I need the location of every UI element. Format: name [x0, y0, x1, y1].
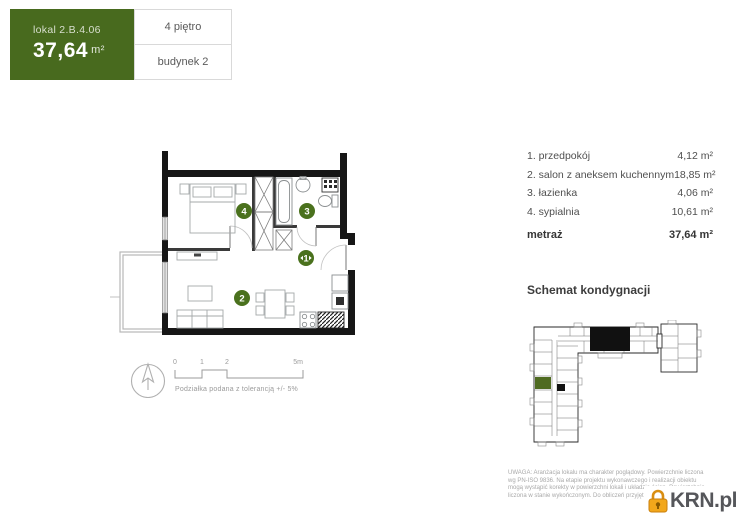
unit-area-unit: m²	[91, 44, 105, 56]
unit-area: 37,64m²	[33, 39, 134, 63]
scale-tick-1: 1	[200, 359, 204, 366]
svg-text:3: 3	[304, 207, 309, 218]
scale-tolerance-note: Podziałka podana z tolerancją +/- 5%	[175, 386, 298, 393]
schematic-black-block	[590, 327, 630, 351]
svg-text:4: 4	[241, 207, 247, 218]
unit-id-label: lokal 2.B.4.06	[33, 24, 134, 36]
unit-area-value: 37,64	[33, 39, 88, 62]
disclaimer-line: UWAGA: Aranżacja lokalu ma charakter pog…	[508, 470, 723, 478]
floor-cell: 4 piętro	[135, 10, 231, 45]
scale-ruler	[175, 370, 303, 378]
room-row: 3. łazienka 4,06 m²	[527, 187, 713, 199]
room-name: 4. sypialnia	[527, 206, 580, 218]
svg-text:2: 2	[239, 294, 244, 305]
toilet-icon	[319, 195, 339, 207]
door-entrance	[321, 245, 346, 270]
header-unit-card: lokal 2.B.4.06 37,64m²	[10, 9, 134, 80]
schematic-core-block	[557, 384, 565, 391]
total-area: 37,64 m²	[669, 229, 713, 241]
door-bedroom	[230, 226, 252, 248]
room-marker-bedroom: 4	[236, 203, 252, 219]
page-root: lokal 2.B.4.06 37,64m² 4 piętro budynek …	[0, 0, 740, 522]
scale-tick-5m: 5m	[293, 359, 303, 366]
scale-tick-2: 2	[225, 359, 229, 366]
window-bedroom	[163, 217, 167, 240]
room-name: 2. salon z aneksem kuchennym	[527, 169, 674, 181]
svg-text:1: 1	[303, 254, 309, 265]
room-area: 18,85 m²	[674, 169, 715, 181]
room-row: 1. przedpokój 4,12 m²	[527, 150, 713, 162]
total-label: metraż	[527, 229, 562, 241]
balcony	[120, 252, 167, 332]
room-marker-bathroom: 3	[299, 203, 315, 219]
disclaimer-line: wg PN-ISO 9836. Na etapie projektu wykon…	[508, 478, 723, 486]
total-area-row: metraż 37,64 m²	[527, 229, 713, 241]
counter-hatch-icon	[318, 312, 344, 328]
scale-tick-0: 0	[173, 359, 177, 366]
room-name: 1. przedpokój	[527, 150, 590, 162]
logo-text: KRN.pl	[670, 489, 737, 513]
room-name: 3. łazienka	[527, 187, 577, 199]
washing-machine-icon	[322, 178, 338, 192]
kitchen-icons	[300, 275, 348, 328]
compass-icon	[132, 364, 165, 398]
fridge-icon	[332, 275, 348, 291]
krn-logo[interactable]: KRN.pl	[644, 486, 739, 515]
room-area: 10,61 m²	[672, 206, 713, 218]
coffee-table-icon	[188, 286, 212, 301]
room-marker-living: 2	[234, 290, 250, 306]
dining-table-icon	[256, 290, 294, 318]
padlock-icon	[648, 488, 668, 513]
header-info-card: 4 piętro budynek 2	[134, 9, 232, 80]
building-label: budynek 2	[158, 56, 209, 68]
room-list: 1. przedpokój 4,12 m² 2. salon z aneksem…	[527, 150, 713, 247]
dresser-icon	[177, 252, 217, 260]
floor-label: 4 piętro	[165, 21, 202, 33]
schematic-highlighted-unit	[535, 377, 551, 389]
bed-icon	[180, 184, 246, 233]
room-area: 4,12 m²	[677, 150, 713, 162]
room-marker-hall: 1	[298, 250, 314, 266]
room-row: 2. salon z aneksem kuchennym 18,85 m²	[527, 169, 713, 181]
schematic-title: Schemat kondygnacji	[527, 283, 650, 297]
room-row: 4. sypialnia 10,61 m²	[527, 206, 713, 218]
bathtub-icon	[276, 178, 292, 225]
balcony-door	[163, 262, 167, 313]
floor-plan: 4 3 2 1	[110, 140, 370, 355]
door-bathroom	[297, 227, 316, 246]
floor-schematic-map	[528, 320, 705, 448]
sofa-icon	[177, 310, 223, 328]
building-cell: budynek 2	[135, 45, 231, 80]
room-area: 4,06 m²	[677, 187, 713, 199]
sink-icon	[296, 177, 310, 193]
